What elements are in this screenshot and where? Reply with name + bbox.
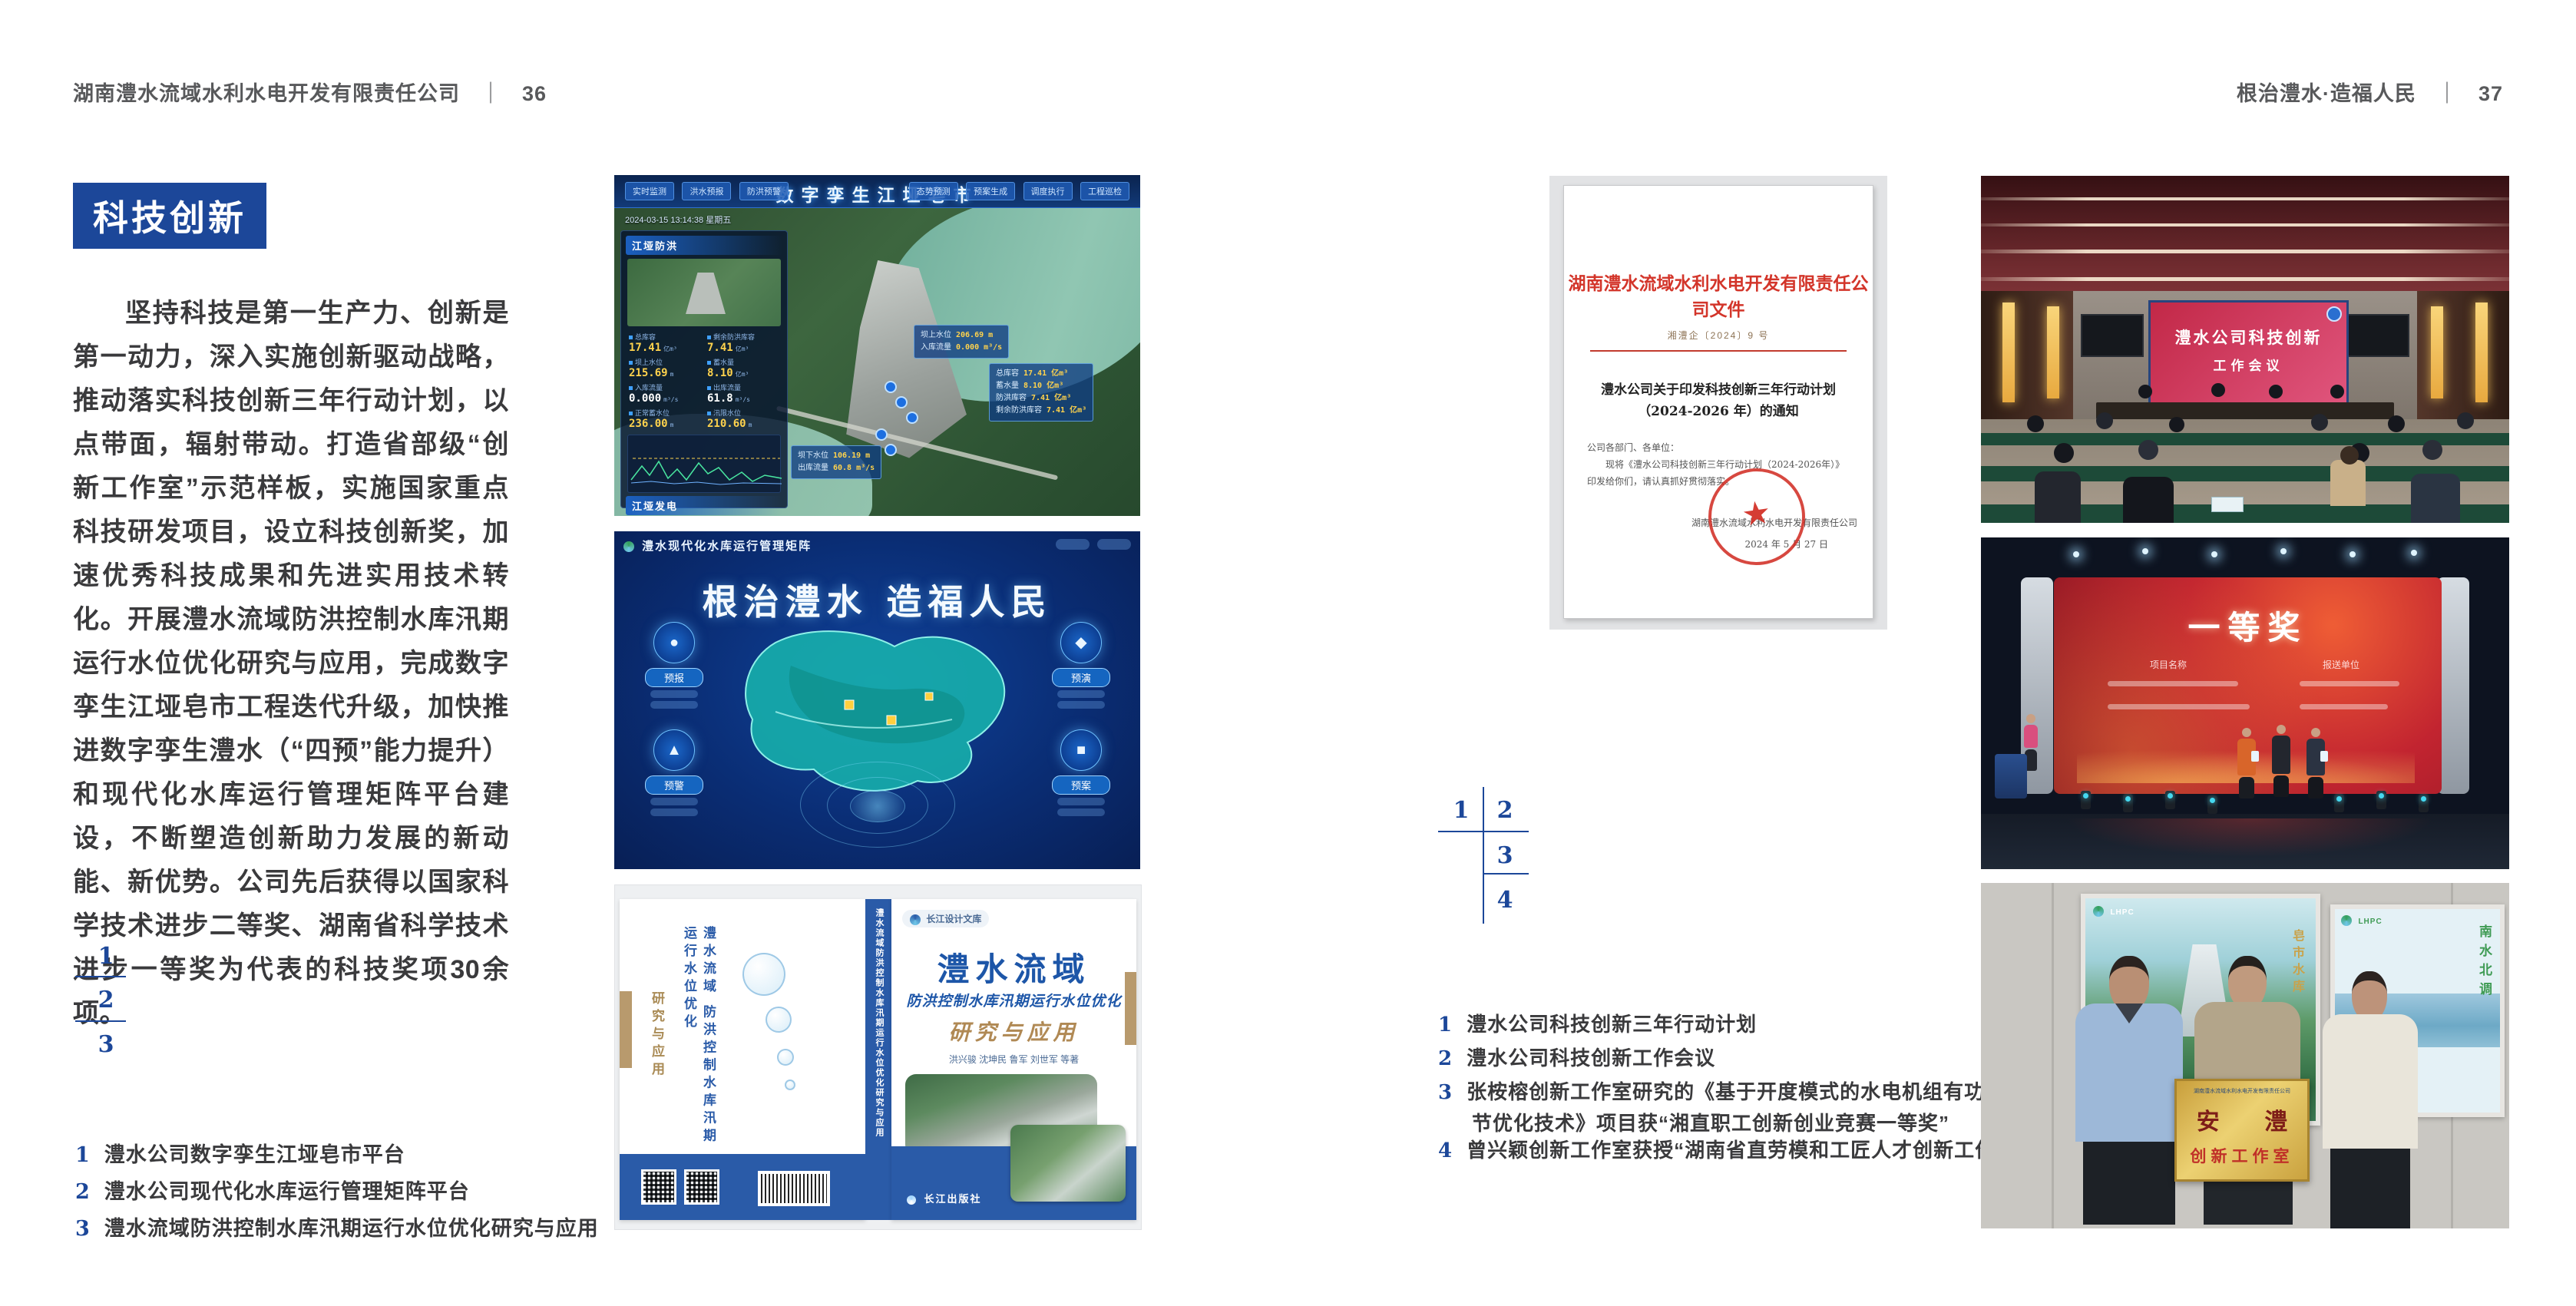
front-title-main: 澧水流域 <box>891 944 1136 990</box>
stat-item: 入库流量0.000m³/s <box>626 381 704 406</box>
host-podium <box>1995 754 2027 798</box>
caption-number: 2 <box>1438 1047 1453 1070</box>
document-masthead: 湖南澧水流域水利水电开发有限责任公司文件 <box>1564 269 1873 321</box>
caption-number: 1 <box>75 1143 91 1167</box>
stat-item: 剩余防洪库容7.41亿m³ <box>704 330 782 355</box>
caption-number: 1 <box>1438 1013 1453 1037</box>
brochure-spread: 湖南澧水流域水利水电开发有限责任公司 ｜ 36 科技创新 坚持科技是第一生产力、… <box>0 0 2576 1306</box>
caption-number: 2 <box>75 1180 91 1204</box>
back-cover-title: 澧水流域 防洪控制水库汛期运行水位优化 <box>680 926 718 1156</box>
caption-text: 澧水公司现代化水库运行管理矩阵平台 <box>104 1180 470 1203</box>
front-title-sub: 防洪控制水库汛期运行水位优化 <box>891 990 1136 1010</box>
figure-index-4: 4 <box>1490 887 1520 914</box>
wall-tv <box>2081 314 2144 357</box>
presenter-trousers <box>2273 775 2289 797</box>
header-divider: ｜ <box>2436 82 2458 105</box>
water-bubble <box>777 1049 794 1066</box>
header-divider: ｜ <box>481 82 502 105</box>
back-cover-tan-block <box>620 991 632 1068</box>
wall-lamp <box>2475 303 2488 402</box>
award-col-project: 项目名称 <box>2150 658 2187 671</box>
stat-item: 出库流量61.8m³/s <box>704 381 782 406</box>
thumbnail-dam-shape <box>686 273 726 315</box>
stage-spotlight <box>2142 548 2148 554</box>
presenter-head <box>2277 725 2286 734</box>
node-label: 预报 <box>645 668 703 687</box>
audience-silhouette <box>2123 477 2174 523</box>
audience-head <box>2340 446 2359 465</box>
qr-code <box>641 1169 676 1205</box>
series-logo-icon <box>910 914 921 925</box>
book-front-cover: 长江设计文库 澧水流域 防洪控制水库汛期运行水位优化 研究与应用 洪兴骏 沈坤民… <box>891 899 1136 1220</box>
spine-title: 澧水流域防洪控制水库汛期运行水位优化研究与应用 <box>873 908 885 1215</box>
meeting-screen: 澧水公司科技创新 工作会议 <box>2148 300 2349 405</box>
water-bubble <box>785 1080 795 1090</box>
matrix-header-pills <box>1051 539 1131 554</box>
audience-head <box>2422 440 2442 460</box>
awardee-orange <box>2237 728 2257 798</box>
forecast-icon: ● <box>653 622 695 663</box>
awardee-head <box>2311 728 2320 737</box>
award-list-line <box>2108 681 2238 686</box>
tab-flood-forecast: 洪水预报 <box>682 182 731 200</box>
figure-index-divider <box>75 1020 126 1022</box>
trophy <box>2320 751 2328 762</box>
wall-seam <box>2052 883 2054 1228</box>
document-subject: 澧水公司关于印发科技创新三年行动计划 （2024-2026 年）的通知 <box>1564 379 1873 422</box>
presenter-suit <box>2271 725 2291 797</box>
node-forecast: ● 预报 <box>628 622 720 709</box>
awardee-trousers <box>2239 777 2254 798</box>
tab-realtime-monitor: 实时监测 <box>625 182 674 200</box>
tab-dispatch-execution: 调度执行 <box>1023 182 1073 200</box>
head-table <box>2096 402 2394 419</box>
node-label: 预案 <box>1052 775 1110 795</box>
node-label: 预演 <box>1052 668 1110 687</box>
poster-right-calligraphy: 南水北调 <box>2475 924 2494 1001</box>
stage-light-fixture <box>2123 794 2133 812</box>
stage-spotlight <box>2211 551 2217 557</box>
document-page: 湖南澧水流域水利水电开发有限责任公司文件 湘澧企〔2024〕9 号 澧水公司关于… <box>1563 185 1873 619</box>
publisher-name: 长江出版社 <box>924 1194 982 1205</box>
audience-head <box>2388 415 2405 432</box>
stage-floor <box>1981 814 2509 869</box>
subject-line-1: 澧水公司关于印发科技创新三年行动计划 <box>1564 379 1873 401</box>
stage-spotlight <box>2280 548 2287 554</box>
header-pill <box>1097 539 1131 550</box>
stage-light-fixture <box>2376 791 2386 809</box>
wall-lamp <box>2002 303 2015 402</box>
front-band-photo <box>1010 1125 1126 1202</box>
figure-index-2: 2 <box>91 987 121 1013</box>
node-simulation: ◆ 预演 <box>1035 622 1127 709</box>
matrix-slogan: 根治澧水 造福人民 <box>614 574 1140 625</box>
document-salutation: 公司各部门、各单位： <box>1587 439 1851 456</box>
plaque-name: 安 澧 <box>2177 1103 2307 1136</box>
node-subpill <box>1057 808 1105 816</box>
presidium-head <box>2330 385 2344 398</box>
audience-head <box>2311 414 2328 431</box>
blue-polo-shirt <box>2075 1003 2183 1142</box>
stat-item: 汛限水位210.60m <box>704 406 782 431</box>
stage-spotlight <box>2349 551 2356 557</box>
gate-marker-icon <box>885 444 897 456</box>
award-list-line <box>2108 704 2250 709</box>
map-callout-capacity: 总库容17.41 亿m³ 蓄水量8.10 亿m³ 防洪库容7.41 亿m³ 剩余… <box>989 363 1093 422</box>
caption-row: 4曾兴颖创新工作室获授“湖南省直劳模和工匠人才创新工作室” <box>1438 1135 2027 1163</box>
panel-title-flood: 江垭防洪 <box>626 236 782 255</box>
caption-row: 1澧水公司数字孪生江垭皂市平台 <box>75 1138 405 1168</box>
stat-item: 总库容17.41亿m³ <box>626 330 704 355</box>
stat-item: 年累计发电量1.2907亿kWh <box>704 515 782 516</box>
node-subpill <box>650 690 698 698</box>
award-title: 一等奖 <box>2054 602 2442 649</box>
tab-situation-forecast: 态势预测 <box>909 182 958 200</box>
lhpc-logo-icon <box>2093 906 2104 917</box>
stage-spotlight <box>2073 551 2079 557</box>
front-cover-band: 长江出版社 <box>891 1146 1136 1220</box>
matrix-header-text: 澧水现代化水库运行管理矩阵 <box>642 540 812 553</box>
audience-head <box>2027 415 2044 432</box>
ceiling-light <box>1981 277 2509 281</box>
barcode <box>758 1171 830 1206</box>
audience-silhouette <box>2411 474 2460 523</box>
water-level-mini-chart <box>627 435 781 493</box>
lhpc-logo-icon <box>2341 915 2352 926</box>
figure-index-divider <box>1438 831 1529 832</box>
screen-line-1: 澧水公司科技创新 <box>2151 326 2346 349</box>
node-subpill <box>1057 690 1105 698</box>
figure-meeting-photo: 澧水公司科技创新 工作会议 <box>1981 176 2509 523</box>
caption-row: 2澧水公司科技创新工作会议 <box>1438 1043 1715 1071</box>
figure-index-1: 1 <box>91 943 121 970</box>
ceiling-light <box>1981 250 2509 253</box>
plaque-subtitle: 创新工作室 <box>2177 1144 2307 1167</box>
figure-index-3: 3 <box>91 1031 121 1058</box>
matrix-header: 澧水现代化水库运行管理矩阵 <box>623 537 812 554</box>
company-seal-icon: ★ <box>1702 462 1811 571</box>
qr-code <box>684 1169 719 1205</box>
node-subpill <box>650 808 698 816</box>
lhpc-logo-text: LHPC <box>2110 908 2134 917</box>
tissue-box <box>2211 497 2244 512</box>
back-cover-tail: 研究与应用 <box>647 991 666 1114</box>
wall-tv <box>2346 314 2409 357</box>
caption-text: 澧水流域防洪控制水库汛期运行水位优化研究与应用 <box>104 1217 599 1240</box>
stage-side-column <box>2437 577 2469 794</box>
header-pill <box>1056 539 1090 550</box>
stat-item: 年发电量6.3000亿kWh <box>626 515 704 516</box>
ceiling-light <box>1981 223 2509 226</box>
node-subpill <box>1057 701 1105 709</box>
audience-head <box>2169 417 2184 432</box>
audience-head <box>2096 412 2113 429</box>
dashboard-tabs-left: 实时监测 洪水预报 防洪预警 <box>625 182 793 200</box>
book-back-cover: 澧水流域 防洪控制水库汛期运行水位优化 研究与应用 <box>620 899 865 1220</box>
caption-number: 4 <box>1438 1139 1453 1162</box>
stage-light-fixture <box>2334 794 2344 812</box>
award-list-line <box>2300 704 2388 709</box>
simulation-icon: ◆ <box>1060 622 1102 663</box>
caption-text: 澧水公司科技创新三年行动计划 <box>1467 1013 1757 1036</box>
host-head <box>2026 714 2035 723</box>
caption-number: 3 <box>75 1217 91 1241</box>
stat-item: 蓄水量8.10亿m³ <box>704 355 782 381</box>
stage-light-fixture <box>2207 795 2217 814</box>
tab-flood-warning: 防洪预警 <box>739 182 789 200</box>
presidium-head <box>2269 385 2283 398</box>
front-authors: 洪兴骏 沈坤民 鲁军 刘世军 等著 <box>891 1053 1136 1066</box>
figure-book-cover: 澧水流域 防洪控制水库汛期运行水位优化 研究与应用 澧水流域防洪控制水库汛期运行… <box>614 884 1142 1230</box>
wall-lamp <box>2047 306 2059 398</box>
dark-trousers <box>2083 1142 2175 1225</box>
presenter-suit-body <box>2272 736 2290 774</box>
flood-stats-grid: 总库容17.41亿m³ 剩余防洪库容7.41亿m³ 坝上水位215.69m 蓄水… <box>626 330 782 431</box>
dashboard-left-panel: 江垭防洪 总库容17.41亿m³ 剩余防洪库容7.41亿m³ 坝上水位215.6… <box>620 230 788 508</box>
tab-project-inspection: 工程巡检 <box>1080 182 1129 200</box>
document-red-rule <box>1590 350 1847 352</box>
left-page-header: 湖南澧水流域水利水电开发有限责任公司 ｜ 36 <box>73 77 547 107</box>
caption-text: 澧水公司科技创新工作会议 <box>1467 1046 1715 1070</box>
stat-item: 坝上水位215.69m <box>626 355 704 381</box>
tab-plan-generation: 预案生成 <box>966 182 1015 200</box>
document-number: 湘澧企〔2024〕9 号 <box>1564 329 1873 342</box>
figure-plaque-photo: LHPC 皂市水库 LHPC 南水北调 <box>1981 883 2509 1228</box>
awardee-trousers <box>2308 777 2323 798</box>
presidium-head <box>2138 385 2152 398</box>
wall-lamp <box>2431 306 2443 398</box>
dashboard-tabs-right: 态势预测 预案生成 调度执行 工程巡检 <box>909 182 1134 200</box>
figure-official-document: 湖南澧水流域水利水电开发有限责任公司文件 湘澧企〔2024〕9 号 澧水公司关于… <box>1549 176 1887 630</box>
series-badge-text: 长江设计文库 <box>926 914 981 924</box>
caption-number: 3 <box>1438 1081 1453 1104</box>
innovation-studio-plaque: 湖南澧水流域水利水电开发有限责任公司 安 澧 创新工作室 <box>2174 1079 2310 1182</box>
publisher-row: 长江出版社 <box>907 1191 982 1205</box>
award-col-unit: 报送单位 <box>2323 658 2359 671</box>
right-page-number: 37 <box>2478 82 2503 105</box>
lhpc-logo-text: LHPC <box>2358 918 2382 926</box>
plaque-header: 湖南澧水流域水利水电开发有限责任公司 <box>2177 1087 2307 1095</box>
node-plan: ■ 预案 <box>1035 729 1127 816</box>
caption-text: 张桉榕创新工作室研究的《基于开度模式的水电机组有功调节优化技术》项目获“湘直职工… <box>1467 1080 2006 1135</box>
right-page-header: 根治澧水·造福人民 ｜ 37 <box>2237 77 2503 107</box>
award-list-line <box>2300 681 2399 686</box>
poster-logo-row: LHPC <box>2093 904 2135 918</box>
map-callout-upstream: 坝上水位206.69 m 入库流量0.000 m³/s <box>914 325 1009 359</box>
warning-icon: ▲ <box>653 729 695 771</box>
plan-icon: ■ <box>1060 729 1102 771</box>
figure-index-divider <box>75 976 126 977</box>
ceiling-light <box>1981 197 2509 200</box>
figure-index-vline <box>1483 787 1484 924</box>
stage-light-fixture <box>2081 791 2091 809</box>
presidium-head <box>2211 383 2225 397</box>
node-warning: ▲ 预警 <box>628 729 720 816</box>
caption-text: 曾兴颖创新工作室获授“湖南省直劳模和工匠人才创新工作室” <box>1467 1139 2027 1162</box>
platform-logo-icon <box>623 541 634 552</box>
caption-row: 1澧水公司科技创新三年行动计划 <box>1438 1009 1757 1037</box>
stat-item: 正常蓄水位236.00m <box>626 406 704 431</box>
stage-spotlight <box>2411 550 2417 556</box>
water-bubble <box>742 953 785 996</box>
caption-row: 3澧水流域防洪控制水库汛期运行水位优化研究与应用 <box>75 1212 599 1242</box>
caption-row: 3张桉榕创新工作室研究的《基于开度模式的水电机组有功调节优化技术》项目获“湘直职… <box>1438 1076 2025 1139</box>
cream-shirt <box>2323 1014 2418 1149</box>
awardee-suit <box>2306 728 2326 798</box>
floor-red-reflection <box>2065 818 2434 857</box>
caption-text: 澧水公司数字孪生江垭皂市平台 <box>104 1143 405 1166</box>
audience-head <box>2457 412 2474 429</box>
audience-head <box>2138 440 2158 460</box>
node-label: 预警 <box>645 775 703 795</box>
dark-skirt <box>2330 1149 2410 1228</box>
section-title-badge: 科技创新 <box>73 183 266 249</box>
figure-award-photo: 一等奖 项目名称 报送单位 <box>1981 537 2509 869</box>
water-bubble <box>766 1007 792 1033</box>
gate-marker-icon <box>906 412 918 424</box>
node-subpill <box>650 701 698 709</box>
screen-logo-icon <box>2326 306 2342 322</box>
book-spine: 澧水流域防洪控制水库汛期运行水位优化研究与应用 <box>865 899 891 1220</box>
section-body-paragraph: 坚持科技是第一生产力、创新是第一动力，深入实施创新驱动战略，推动落实科技创新三年… <box>73 292 509 1036</box>
map-callout-downstream: 坝下水位106.19 m 出库流量60.8 m³/s <box>791 445 881 479</box>
motto: 根治澧水·造福人民 <box>2237 82 2416 105</box>
figure-matrix-platform: 澧水现代化水库运行管理矩阵 根治澧水 造福人民 ● 预报 ▲ 预警 <box>614 531 1140 869</box>
audience-head <box>2054 443 2074 463</box>
subject-line-2: （2024-2026 年）的通知 <box>1564 401 1873 422</box>
caption-row: 2澧水公司现代化水库运行管理矩阵平台 <box>75 1175 470 1205</box>
figure-index-1: 1 <box>1446 797 1476 824</box>
left-page-number: 36 <box>522 82 547 105</box>
figure-index-3: 3 <box>1490 842 1520 869</box>
gate-marker-icon <box>875 428 888 441</box>
trophy <box>2251 751 2259 762</box>
panel-title-power: 江垭发电 <box>626 496 782 515</box>
radar-ring <box>850 790 905 822</box>
host-pink-top <box>2024 725 2038 748</box>
awardee-head <box>2242 728 2251 737</box>
figure-index-2: 2 <box>1490 797 1520 824</box>
dashboard-timestamp: 2024-03-15 13:14:38 星期五 <box>625 213 731 226</box>
stage-light-fixture <box>2419 794 2429 812</box>
person-right <box>2307 971 2430 1228</box>
poster-logo-row: LHPC <box>2341 914 2383 927</box>
audience-silhouette <box>2035 471 2081 523</box>
figure-digital-twin-dashboard: 数字孪生江垭皂市 实时监测 洪水预报 防洪预警 态势预测 预案生成 调度执行 工… <box>614 175 1140 516</box>
back-cover-band <box>620 1154 865 1220</box>
node-subpill <box>1057 798 1105 805</box>
dam-aerial-thumbnail <box>627 259 781 326</box>
publisher-logo-icon <box>907 1195 916 1205</box>
screen-line-2: 工作会议 <box>2151 355 2346 374</box>
audience-khaki-jacket <box>2330 460 2366 506</box>
figure-index-divider <box>1483 873 1529 875</box>
power-stats-grid: 年发电量6.3000亿kWh 年累计发电量1.2907亿kWh 月累计发电量33… <box>626 515 782 516</box>
stage-light-fixture <box>2165 791 2175 809</box>
gate-marker-icon <box>895 396 908 408</box>
company-name: 湖南澧水流域水利水电开发有限责任公司 <box>73 82 460 105</box>
front-title-tail: 研究与应用 <box>891 1016 1136 1046</box>
node-subpill <box>650 798 698 805</box>
series-badge: 长江设计文库 <box>902 910 989 927</box>
gate-marker-icon <box>885 381 897 393</box>
